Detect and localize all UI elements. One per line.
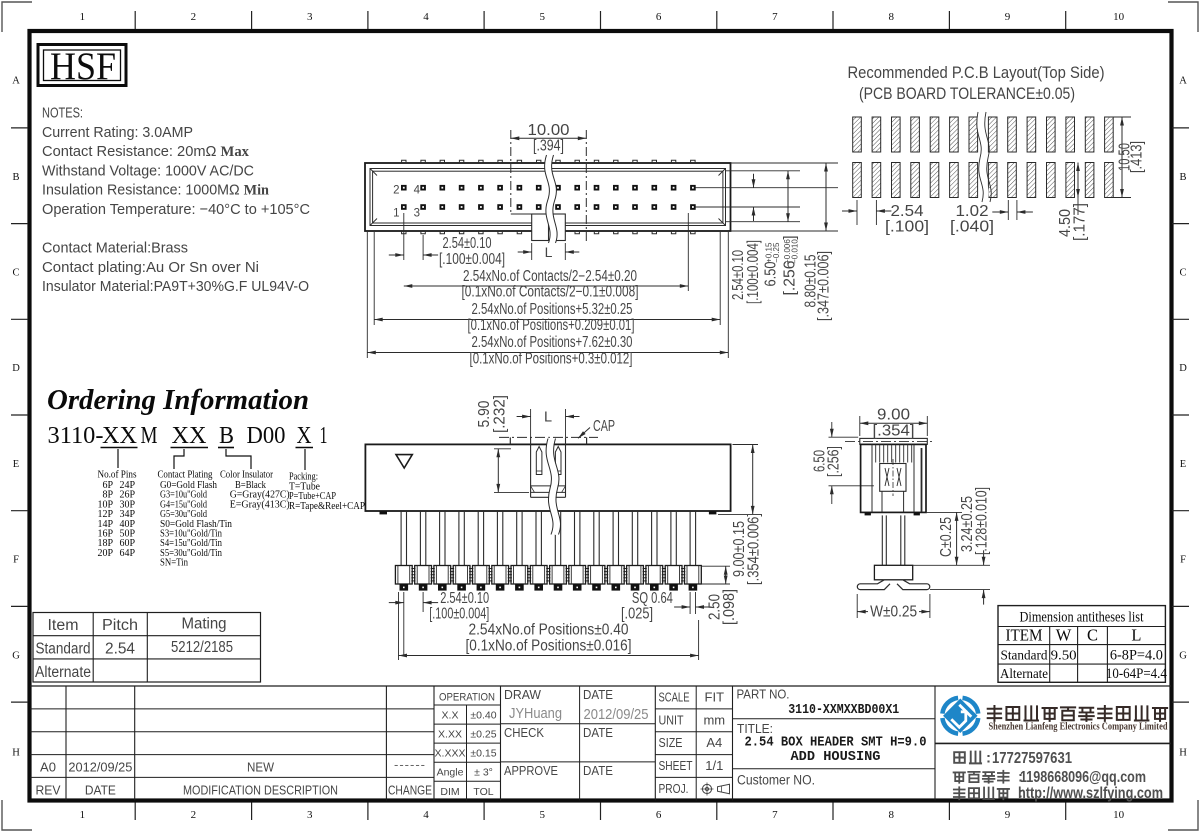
svg-text:JYHuang: JYHuang <box>509 706 562 722</box>
svg-text:[.354±0.006]: [.354±0.006] <box>746 513 763 585</box>
svg-text:PART NO.: PART NO. <box>737 688 790 702</box>
svg-text:5212/2185: 5212/2185 <box>171 639 233 656</box>
svg-text:5.90: 5.90 <box>476 401 493 428</box>
svg-text:[.025]: [.025] <box>621 606 653 623</box>
svg-text:[.100±0.004]: [.100±0.004] <box>439 251 505 268</box>
svg-text:9: 9 <box>1005 809 1011 821</box>
svg-text:ADD HOUSING: ADD HOUSING <box>791 750 881 765</box>
svg-text:2.54±0.10: 2.54±0.10 <box>443 235 492 252</box>
svg-text:TOL: TOL <box>473 786 493 798</box>
svg-text:2012/09/25: 2012/09/25 <box>584 706 649 723</box>
svg-text:http://www.szlfying.com: http://www.szlfying.com <box>1018 785 1163 802</box>
svg-text:Contact Material:Brass: Contact Material:Brass <box>42 240 188 257</box>
svg-text:X.XXX: X.XXX <box>435 748 466 760</box>
svg-text:DRAW: DRAW <box>504 688 541 702</box>
svg-text:D: D <box>12 363 20 374</box>
svg-text:Shenzhen Lianfeng Electronics: Shenzhen Lianfeng Electronics Company Li… <box>989 721 1168 733</box>
svg-text:Mating: Mating <box>182 616 227 633</box>
svg-text:1198668096@qq.com: 1198668096@qq.com <box>1020 769 1146 786</box>
svg-text:G: G <box>1179 650 1187 661</box>
svg-text:3110-XXMXXBD00X1: 3110-XXMXXBD00X1 <box>788 702 899 718</box>
svg-text:M: M <box>141 423 158 449</box>
svg-text:Dimension antitheses list: Dimension antitheses list <box>1020 610 1145 626</box>
svg-text:4: 4 <box>423 809 429 821</box>
svg-text:1: 1 <box>320 423 328 449</box>
svg-text:UNIT: UNIT <box>659 713 684 727</box>
svg-text:H: H <box>1179 747 1187 758</box>
svg-text:X.X: X.X <box>442 710 459 722</box>
svg-text:[0.1xNo.of Contacts/2−0.1±0.00: [0.1xNo.of Contacts/2−0.1±0.008] <box>462 284 639 301</box>
svg-text:[.256: [.256 <box>782 261 799 296</box>
svg-text:B: B <box>12 172 19 183</box>
svg-text:A4: A4 <box>706 735 722 750</box>
svg-text:6: 6 <box>656 11 662 23</box>
svg-text:9: 9 <box>1005 11 1011 23</box>
svg-text:4: 4 <box>414 185 421 197</box>
svg-text:5: 5 <box>540 809 546 821</box>
svg-text:8: 8 <box>888 809 894 821</box>
svg-text:B: B <box>1179 172 1186 183</box>
svg-text:C: C <box>1087 626 1098 645</box>
svg-text:Item: Item <box>48 617 79 634</box>
svg-text:2012/09/25: 2012/09/25 <box>68 760 132 775</box>
svg-text:D: D <box>1179 363 1187 374</box>
svg-text:Insulation Resistance: 1000MΩ: Insulation Resistance: 1000MΩ Min <box>42 182 270 199</box>
svg-text:[0.1xNo.of Positions+0.209±0.0: [0.1xNo.of Positions+0.209±0.01] <box>468 317 635 334</box>
svg-text:±0.25: ±0.25 <box>470 729 496 741</box>
svg-text:[.177]: [.177] <box>1072 203 1089 241</box>
svg-text:−0.010: −0.010 <box>791 239 800 264</box>
svg-text:NEW: NEW <box>247 760 275 775</box>
svg-text:2.54xNo.of Positions+7.62±0.30: 2.54xNo.of Positions+7.62±0.30 <box>472 334 633 351</box>
svg-text:DATE: DATE <box>85 783 116 798</box>
svg-text:G: G <box>12 650 20 661</box>
svg-text:PROJ.: PROJ. <box>659 782 689 796</box>
svg-text:SN=Tin: SN=Tin <box>160 558 188 569</box>
svg-text:F: F <box>13 555 19 566</box>
svg-text:E=Gray(413C): E=Gray(413C) <box>230 499 290 510</box>
svg-text:10.00: 10.00 <box>528 122 570 139</box>
svg-text:10: 10 <box>1113 11 1125 23</box>
svg-text:[0.1xNo.of Positions±0.016]: [0.1xNo.of Positions±0.016] <box>466 638 632 655</box>
svg-text::: : <box>986 750 991 767</box>
svg-text:6.50: 6.50 <box>763 262 780 287</box>
svg-text:[.040]: [.040] <box>950 219 994 236</box>
svg-text:[.354]: [.354] <box>873 423 915 440</box>
svg-text:HSF: HSF <box>50 45 116 88</box>
svg-text:L: L <box>545 244 553 260</box>
svg-text:Withstand Voltage: 1000V AC/DC: Withstand Voltage: 1000V AC/DC <box>42 162 254 179</box>
svg-text:C±0.25: C±0.25 <box>938 517 955 557</box>
svg-text:L: L <box>1131 626 1141 645</box>
svg-text:Alternate: Alternate <box>1000 667 1048 682</box>
svg-text:E: E <box>13 459 19 470</box>
svg-text:Pitch: Pitch <box>102 617 138 634</box>
svg-text:Operation Temperature: −40°C t: Operation Temperature: −40°C to +105°C <box>42 201 310 218</box>
svg-text:1: 1 <box>393 208 399 220</box>
svg-text:[.128±0.010]: [.128±0.010] <box>974 487 991 555</box>
svg-text:A: A <box>1179 75 1187 86</box>
svg-text:XX: XX <box>102 423 137 449</box>
svg-text:2.54xNo.of Contacts/2−2.54±0.2: 2.54xNo.of Contacts/2−2.54±0.20 <box>463 268 637 285</box>
svg-text:ITEM: ITEM <box>1006 626 1043 645</box>
svg-text:20P: 20P <box>97 548 113 559</box>
svg-text:[.100±0.004]: [.100±0.004] <box>429 606 489 623</box>
svg-text:MODIFICATION DESCRIPTION: MODIFICATION DESCRIPTION <box>183 784 338 798</box>
svg-text:DIM: DIM <box>440 786 459 798</box>
svg-text:[.394]: [.394] <box>533 138 564 155</box>
svg-text:2.54: 2.54 <box>105 641 135 658</box>
svg-text:4: 4 <box>423 11 429 23</box>
svg-text:CAP: CAP <box>593 418 615 435</box>
svg-text:Contact Resistance: 20mΩ Max: Contact Resistance: 20mΩ Max <box>42 143 249 160</box>
svg-text:64P: 64P <box>120 548 136 559</box>
svg-text:2.54xNo.of Positions+5.32±0.25: 2.54xNo.of Positions+5.32±0.25 <box>472 301 633 318</box>
svg-text:B: B <box>219 423 234 449</box>
svg-text:[.256]: [.256] <box>826 446 843 477</box>
svg-text:2: 2 <box>191 809 197 821</box>
svg-text:Color Insulator: Color Insulator <box>220 469 273 481</box>
svg-text:DATE: DATE <box>583 726 613 740</box>
svg-text:−0.25: −0.25 <box>772 242 781 263</box>
svg-text:1: 1 <box>80 809 86 821</box>
svg-text:No.of Pins: No.of Pins <box>98 469 137 481</box>
svg-text:L: L <box>544 410 552 426</box>
svg-text:7: 7 <box>772 809 778 821</box>
svg-text:F: F <box>1180 555 1186 566</box>
svg-text:[.232]: [.232] <box>492 395 509 433</box>
svg-text:A0: A0 <box>40 760 56 775</box>
svg-text:2: 2 <box>191 11 197 23</box>
svg-text:D00: D00 <box>247 423 286 449</box>
svg-text:2.54: 2.54 <box>891 203 924 220</box>
svg-text:W: W <box>1056 626 1072 645</box>
svg-text:7: 7 <box>772 11 778 23</box>
svg-text:Recommended P.C.B Layout(Top S: Recommended P.C.B Layout(Top Side) <box>848 64 1105 82</box>
svg-text:[.098]: [.098] <box>721 589 738 625</box>
svg-text:6-8P=4.0: 6-8P=4.0 <box>1110 648 1163 664</box>
svg-text:H: H <box>12 747 20 758</box>
svg-text:[.347±0.006]: [.347±0.006] <box>816 251 833 321</box>
svg-text:3110-: 3110- <box>48 423 104 449</box>
svg-text:17727597631: 17727597631 <box>992 750 1072 767</box>
svg-text:APPROVE: APPROVE <box>504 764 558 778</box>
svg-text:10: 10 <box>1113 809 1125 821</box>
svg-text:DATE: DATE <box>583 764 613 778</box>
svg-text:Angle: Angle <box>437 767 464 779</box>
svg-text:9.00: 9.00 <box>877 407 910 424</box>
svg-text:2.54 BOX HEADER SMT H=9.0: 2.54 BOX HEADER SMT H=9.0 <box>745 736 927 751</box>
svg-text:±0.15: ±0.15 <box>470 748 496 760</box>
svg-text:X: X <box>297 423 312 449</box>
svg-text:[0.1xNo.of Positions+0.3±0.012: [0.1xNo.of Positions+0.3±0.012] <box>470 351 633 368</box>
svg-text:[.100±0.004]: [.100±0.004] <box>745 240 762 304</box>
svg-text:Insulator Material:PA9T+30%G.F: Insulator Material:PA9T+30%G.F UL94V-O <box>42 278 309 295</box>
svg-text:CHANGE: CHANGE <box>388 784 432 798</box>
svg-text:C: C <box>12 267 19 278</box>
svg-text:3: 3 <box>307 809 313 821</box>
svg-text:mm: mm <box>703 712 725 727</box>
svg-text:[.413]: [.413] <box>1129 141 1146 173</box>
svg-text:Contact plating:Au Or Sn over: Contact plating:Au Or Sn over Ni <box>42 259 259 276</box>
svg-text:Contact Plating: Contact Plating <box>158 469 213 481</box>
svg-text:Alternate: Alternate <box>35 664 91 681</box>
svg-text:R=Tape&Reel+CAP: R=Tape&Reel+CAP <box>289 501 365 512</box>
svg-text:Standard: Standard <box>36 641 91 658</box>
svg-text:E: E <box>1180 459 1186 470</box>
svg-text:(PCB BOARD TOLERANCE±0.05): (PCB BOARD TOLERANCE±0.05) <box>859 85 1075 103</box>
svg-text:SHEET: SHEET <box>659 759 693 773</box>
svg-text:Ordering Information: Ordering Information <box>47 385 309 416</box>
svg-text:± 3°: ± 3° <box>474 767 493 779</box>
svg-text:Current Rating: 3.0AMP: Current Rating: 3.0AMP <box>42 124 193 141</box>
svg-text:2.54±0.10: 2.54±0.10 <box>440 590 489 607</box>
svg-text:------: ------ <box>394 757 426 772</box>
svg-text:REV: REV <box>36 783 61 798</box>
svg-text:1.02: 1.02 <box>956 203 989 220</box>
svg-text:2.54xNo.of Positions±0.40: 2.54xNo.of Positions±0.40 <box>469 622 629 639</box>
svg-text:2: 2 <box>393 185 399 197</box>
svg-text:C: C <box>1179 267 1186 278</box>
svg-text:6: 6 <box>656 809 662 821</box>
svg-text:X.XX: X.XX <box>438 729 462 741</box>
svg-text:SIZE: SIZE <box>659 736 683 750</box>
svg-text:A: A <box>12 75 20 86</box>
svg-text:[.100]: [.100] <box>885 219 929 236</box>
svg-text:DATE: DATE <box>583 688 613 702</box>
svg-text:Standard: Standard <box>1001 649 1048 664</box>
svg-text:FIT: FIT <box>705 690 725 705</box>
svg-text:SCALE: SCALE <box>659 691 690 705</box>
svg-text:W±0.25: W±0.25 <box>870 604 917 621</box>
svg-text:OPERATION: OPERATION <box>439 692 495 704</box>
svg-text:TITLE:: TITLE: <box>737 722 773 736</box>
svg-text:CHECK: CHECK <box>504 726 545 740</box>
svg-text:Customer NO.: Customer NO. <box>737 773 815 788</box>
svg-text:]: ] <box>782 235 799 239</box>
svg-text:8: 8 <box>888 11 894 23</box>
svg-text:SQ 0.64: SQ 0.64 <box>632 590 673 607</box>
svg-text:10-64P=4.4: 10-64P=4.4 <box>1106 666 1168 682</box>
svg-text:XX: XX <box>172 423 207 449</box>
svg-text:1: 1 <box>80 11 86 23</box>
svg-text:±0.40: ±0.40 <box>470 710 496 722</box>
svg-text:5: 5 <box>540 11 546 23</box>
svg-text:1/1: 1/1 <box>705 758 723 773</box>
svg-text:NOTES:: NOTES: <box>42 105 83 122</box>
svg-text:3: 3 <box>307 11 313 23</box>
svg-text:9.50: 9.50 <box>1051 649 1077 664</box>
svg-text:3: 3 <box>414 208 420 220</box>
